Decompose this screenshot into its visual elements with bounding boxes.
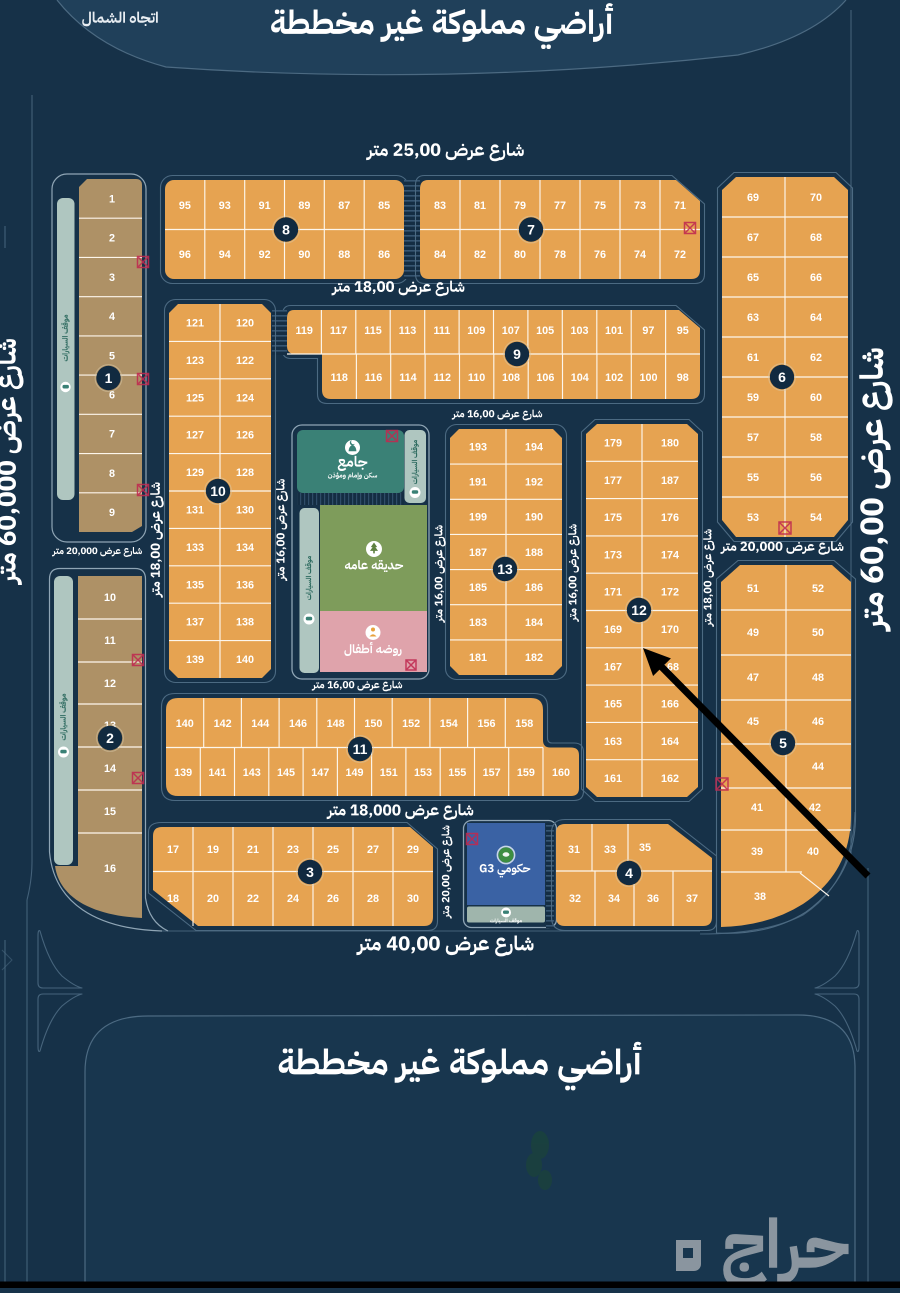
svg-text:104: 104 — [571, 372, 589, 384]
svg-text:151: 151 — [380, 767, 398, 779]
svg-text:165: 165 — [604, 699, 622, 711]
svg-text:164: 164 — [661, 736, 679, 748]
svg-text:97: 97 — [642, 325, 654, 337]
svg-text:174: 174 — [661, 549, 679, 561]
svg-text:187: 187 — [661, 475, 679, 487]
svg-text:161: 161 — [604, 773, 622, 785]
svg-text:170: 170 — [661, 624, 679, 636]
svg-text:44: 44 — [812, 761, 824, 773]
svg-text:171: 171 — [604, 587, 622, 599]
svg-text:65: 65 — [747, 272, 759, 284]
svg-text:111: 111 — [433, 325, 450, 337]
svg-text:10: 10 — [210, 483, 226, 499]
svg-text:7: 7 — [109, 429, 115, 441]
svg-text:35: 35 — [639, 842, 651, 854]
svg-text:60: 60 — [810, 392, 822, 404]
svg-text:134: 134 — [236, 542, 254, 554]
svg-text:21: 21 — [247, 844, 259, 856]
svg-text:156: 156 — [477, 718, 495, 730]
svg-text:117: 117 — [330, 325, 347, 337]
svg-text:24: 24 — [287, 893, 299, 905]
svg-text:146: 146 — [289, 718, 307, 730]
svg-text:92: 92 — [259, 249, 271, 261]
svg-text:140: 140 — [176, 718, 194, 730]
svg-text:158: 158 — [515, 718, 533, 730]
svg-text:177: 177 — [604, 475, 622, 487]
svg-text:81: 81 — [474, 200, 486, 212]
svg-text:14: 14 — [104, 763, 116, 775]
svg-text:61: 61 — [747, 352, 759, 364]
svg-text:52: 52 — [812, 583, 824, 595]
svg-text:121: 121 — [186, 318, 204, 330]
svg-text:41: 41 — [751, 802, 763, 814]
svg-text:1: 1 — [109, 193, 115, 205]
svg-text:182: 182 — [525, 652, 543, 664]
svg-text:95: 95 — [179, 200, 191, 212]
svg-text:147: 147 — [311, 767, 329, 779]
svg-text:58: 58 — [810, 432, 822, 444]
svg-text:55: 55 — [747, 472, 759, 484]
svg-text:10: 10 — [104, 592, 116, 604]
svg-text:106: 106 — [536, 372, 554, 384]
svg-text:62: 62 — [810, 352, 822, 364]
svg-text:78: 78 — [554, 249, 566, 261]
svg-text:32: 32 — [569, 893, 581, 905]
svg-text:154: 154 — [440, 718, 458, 730]
svg-text:13: 13 — [497, 561, 513, 577]
svg-text:67: 67 — [747, 232, 759, 244]
svg-text:149: 149 — [345, 767, 363, 779]
svg-text:54: 54 — [810, 512, 822, 524]
svg-text:77: 77 — [554, 200, 566, 212]
svg-text:109: 109 — [467, 325, 485, 337]
svg-text:93: 93 — [219, 200, 231, 212]
svg-text:71: 71 — [674, 200, 686, 212]
svg-text:31: 31 — [568, 844, 580, 856]
svg-text:186: 186 — [525, 582, 543, 594]
svg-text:137: 137 — [186, 617, 204, 629]
svg-text:152: 152 — [402, 718, 420, 730]
svg-text:56: 56 — [810, 472, 822, 484]
svg-text:192: 192 — [525, 477, 543, 489]
svg-text:181: 181 — [469, 652, 487, 664]
svg-text:162: 162 — [661, 773, 679, 785]
svg-text:5: 5 — [779, 735, 787, 751]
svg-text:20: 20 — [207, 893, 219, 905]
svg-text:9: 9 — [513, 346, 521, 362]
svg-text:83: 83 — [434, 200, 446, 212]
svg-text:163: 163 — [604, 736, 622, 748]
svg-text:47: 47 — [747, 672, 759, 684]
svg-text:94: 94 — [219, 249, 231, 261]
svg-text:144: 144 — [251, 718, 269, 730]
svg-text:153: 153 — [414, 767, 432, 779]
svg-text:86: 86 — [378, 249, 390, 261]
svg-text:140: 140 — [236, 654, 254, 666]
svg-text:4: 4 — [625, 865, 633, 881]
svg-text:9: 9 — [109, 507, 115, 519]
svg-text:51: 51 — [747, 583, 759, 595]
svg-text:139: 139 — [174, 767, 192, 779]
svg-text:39: 39 — [751, 846, 763, 858]
svg-text:141: 141 — [208, 767, 226, 779]
svg-text:3: 3 — [306, 864, 314, 880]
svg-text:123: 123 — [186, 355, 204, 367]
svg-text:50: 50 — [812, 627, 824, 639]
svg-text:63: 63 — [747, 312, 759, 324]
svg-text:176: 176 — [661, 512, 679, 524]
svg-text:8: 8 — [282, 221, 290, 237]
svg-text:88: 88 — [338, 249, 350, 261]
svg-text:166: 166 — [661, 699, 679, 711]
svg-text:6: 6 — [778, 369, 786, 385]
svg-text:40: 40 — [807, 846, 819, 858]
svg-text:145: 145 — [277, 767, 295, 779]
svg-text:138: 138 — [236, 617, 254, 629]
svg-text:72: 72 — [674, 249, 686, 261]
svg-text:38: 38 — [754, 891, 766, 903]
svg-text:75: 75 — [594, 200, 606, 212]
svg-text:191: 191 — [469, 477, 487, 489]
svg-text:29: 29 — [407, 844, 419, 856]
svg-text:139: 139 — [186, 654, 204, 666]
svg-text:74: 74 — [634, 249, 646, 261]
svg-text:105: 105 — [536, 325, 554, 337]
svg-text:46: 46 — [812, 716, 824, 728]
svg-text:12: 12 — [104, 678, 116, 690]
svg-text:4: 4 — [109, 311, 115, 323]
svg-text:179: 179 — [604, 438, 622, 450]
svg-text:19: 19 — [207, 844, 219, 856]
svg-text:180: 180 — [661, 438, 679, 450]
svg-text:155: 155 — [448, 767, 466, 779]
svg-text:23: 23 — [287, 844, 299, 856]
svg-text:124: 124 — [236, 392, 254, 404]
svg-text:136: 136 — [236, 579, 254, 591]
svg-text:183: 183 — [469, 617, 487, 629]
svg-text:11: 11 — [104, 635, 115, 647]
svg-text:143: 143 — [243, 767, 261, 779]
svg-text:118: 118 — [330, 372, 347, 384]
svg-text:34: 34 — [608, 893, 620, 905]
svg-text:90: 90 — [298, 249, 310, 261]
svg-text:73: 73 — [634, 200, 646, 212]
svg-text:12: 12 — [631, 602, 647, 618]
svg-text:184: 184 — [525, 617, 543, 629]
svg-text:113: 113 — [399, 325, 416, 337]
svg-text:69: 69 — [747, 192, 759, 204]
svg-text:64: 64 — [810, 312, 822, 324]
svg-text:131: 131 — [186, 505, 204, 517]
svg-text:2: 2 — [106, 730, 114, 746]
svg-text:185: 185 — [469, 582, 487, 594]
svg-text:7: 7 — [527, 221, 535, 237]
svg-text:160: 160 — [552, 767, 570, 779]
svg-text:28: 28 — [367, 893, 379, 905]
svg-text:53: 53 — [747, 512, 759, 524]
svg-text:42: 42 — [809, 802, 821, 814]
svg-text:114: 114 — [399, 372, 416, 384]
svg-text:133: 133 — [186, 542, 204, 554]
svg-text:199: 199 — [469, 512, 487, 524]
svg-text:167: 167 — [604, 661, 622, 673]
svg-text:37: 37 — [686, 893, 698, 905]
svg-text:59: 59 — [747, 392, 759, 404]
svg-text:103: 103 — [570, 325, 588, 337]
svg-text:18: 18 — [167, 893, 179, 905]
svg-text:150: 150 — [364, 718, 382, 730]
svg-text:148: 148 — [327, 718, 345, 730]
svg-text:172: 172 — [661, 587, 679, 599]
svg-text:101: 101 — [605, 325, 623, 337]
svg-text:108: 108 — [502, 372, 520, 384]
svg-text:17: 17 — [167, 844, 179, 856]
svg-text:33: 33 — [604, 844, 616, 856]
svg-text:116: 116 — [365, 372, 382, 384]
svg-text:102: 102 — [605, 372, 623, 384]
svg-text:98: 98 — [677, 372, 689, 384]
svg-text:1: 1 — [105, 370, 113, 386]
svg-text:48: 48 — [812, 672, 824, 684]
svg-text:190: 190 — [525, 512, 543, 524]
svg-text:79: 79 — [514, 200, 526, 212]
svg-text:100: 100 — [639, 372, 657, 384]
svg-text:36: 36 — [647, 893, 659, 905]
svg-text:27: 27 — [367, 844, 379, 856]
svg-text:45: 45 — [747, 716, 759, 728]
svg-text:125: 125 — [186, 392, 204, 404]
svg-text:16: 16 — [104, 863, 116, 875]
svg-text:68: 68 — [810, 232, 822, 244]
svg-text:26: 26 — [327, 893, 339, 905]
svg-text:107: 107 — [502, 325, 520, 337]
svg-text:142: 142 — [214, 718, 232, 730]
svg-text:22: 22 — [247, 893, 259, 905]
svg-text:82: 82 — [474, 249, 486, 261]
svg-text:175: 175 — [604, 512, 622, 524]
svg-text:157: 157 — [483, 767, 501, 779]
svg-text:128: 128 — [236, 467, 254, 479]
svg-text:127: 127 — [186, 430, 204, 442]
svg-text:96: 96 — [179, 249, 191, 261]
svg-text:110: 110 — [468, 372, 485, 384]
svg-text:25: 25 — [327, 844, 339, 856]
svg-text:187: 187 — [469, 547, 487, 559]
svg-text:119: 119 — [295, 325, 312, 337]
svg-text:193: 193 — [469, 441, 487, 453]
svg-text:120: 120 — [236, 318, 254, 330]
svg-text:194: 194 — [525, 441, 543, 453]
svg-text:11: 11 — [353, 741, 368, 757]
svg-text:169: 169 — [604, 624, 622, 636]
svg-text:126: 126 — [236, 430, 254, 442]
svg-text:135: 135 — [186, 579, 204, 591]
svg-text:2: 2 — [109, 233, 115, 245]
svg-text:57: 57 — [747, 432, 759, 444]
svg-text:76: 76 — [594, 249, 606, 261]
svg-text:89: 89 — [298, 200, 310, 212]
svg-text:130: 130 — [236, 505, 254, 517]
svg-text:115: 115 — [364, 325, 381, 337]
svg-text:91: 91 — [259, 200, 271, 212]
svg-text:188: 188 — [525, 547, 543, 559]
svg-text:66: 66 — [810, 272, 822, 284]
svg-text:95: 95 — [677, 325, 689, 337]
svg-text:85: 85 — [378, 200, 390, 212]
svg-text:129: 129 — [186, 467, 204, 479]
svg-text:3: 3 — [109, 272, 115, 284]
svg-text:70: 70 — [810, 192, 822, 204]
svg-text:173: 173 — [604, 549, 622, 561]
svg-text:30: 30 — [407, 893, 419, 905]
svg-text:87: 87 — [338, 200, 350, 212]
svg-text:122: 122 — [236, 355, 254, 367]
svg-text:159: 159 — [517, 767, 535, 779]
svg-text:112: 112 — [434, 372, 451, 384]
svg-text:8: 8 — [109, 468, 115, 480]
svg-text:49: 49 — [747, 627, 759, 639]
svg-text:15: 15 — [104, 806, 116, 818]
svg-text:84: 84 — [434, 249, 446, 261]
svg-text:5: 5 — [109, 350, 115, 362]
svg-text:80: 80 — [514, 249, 526, 261]
